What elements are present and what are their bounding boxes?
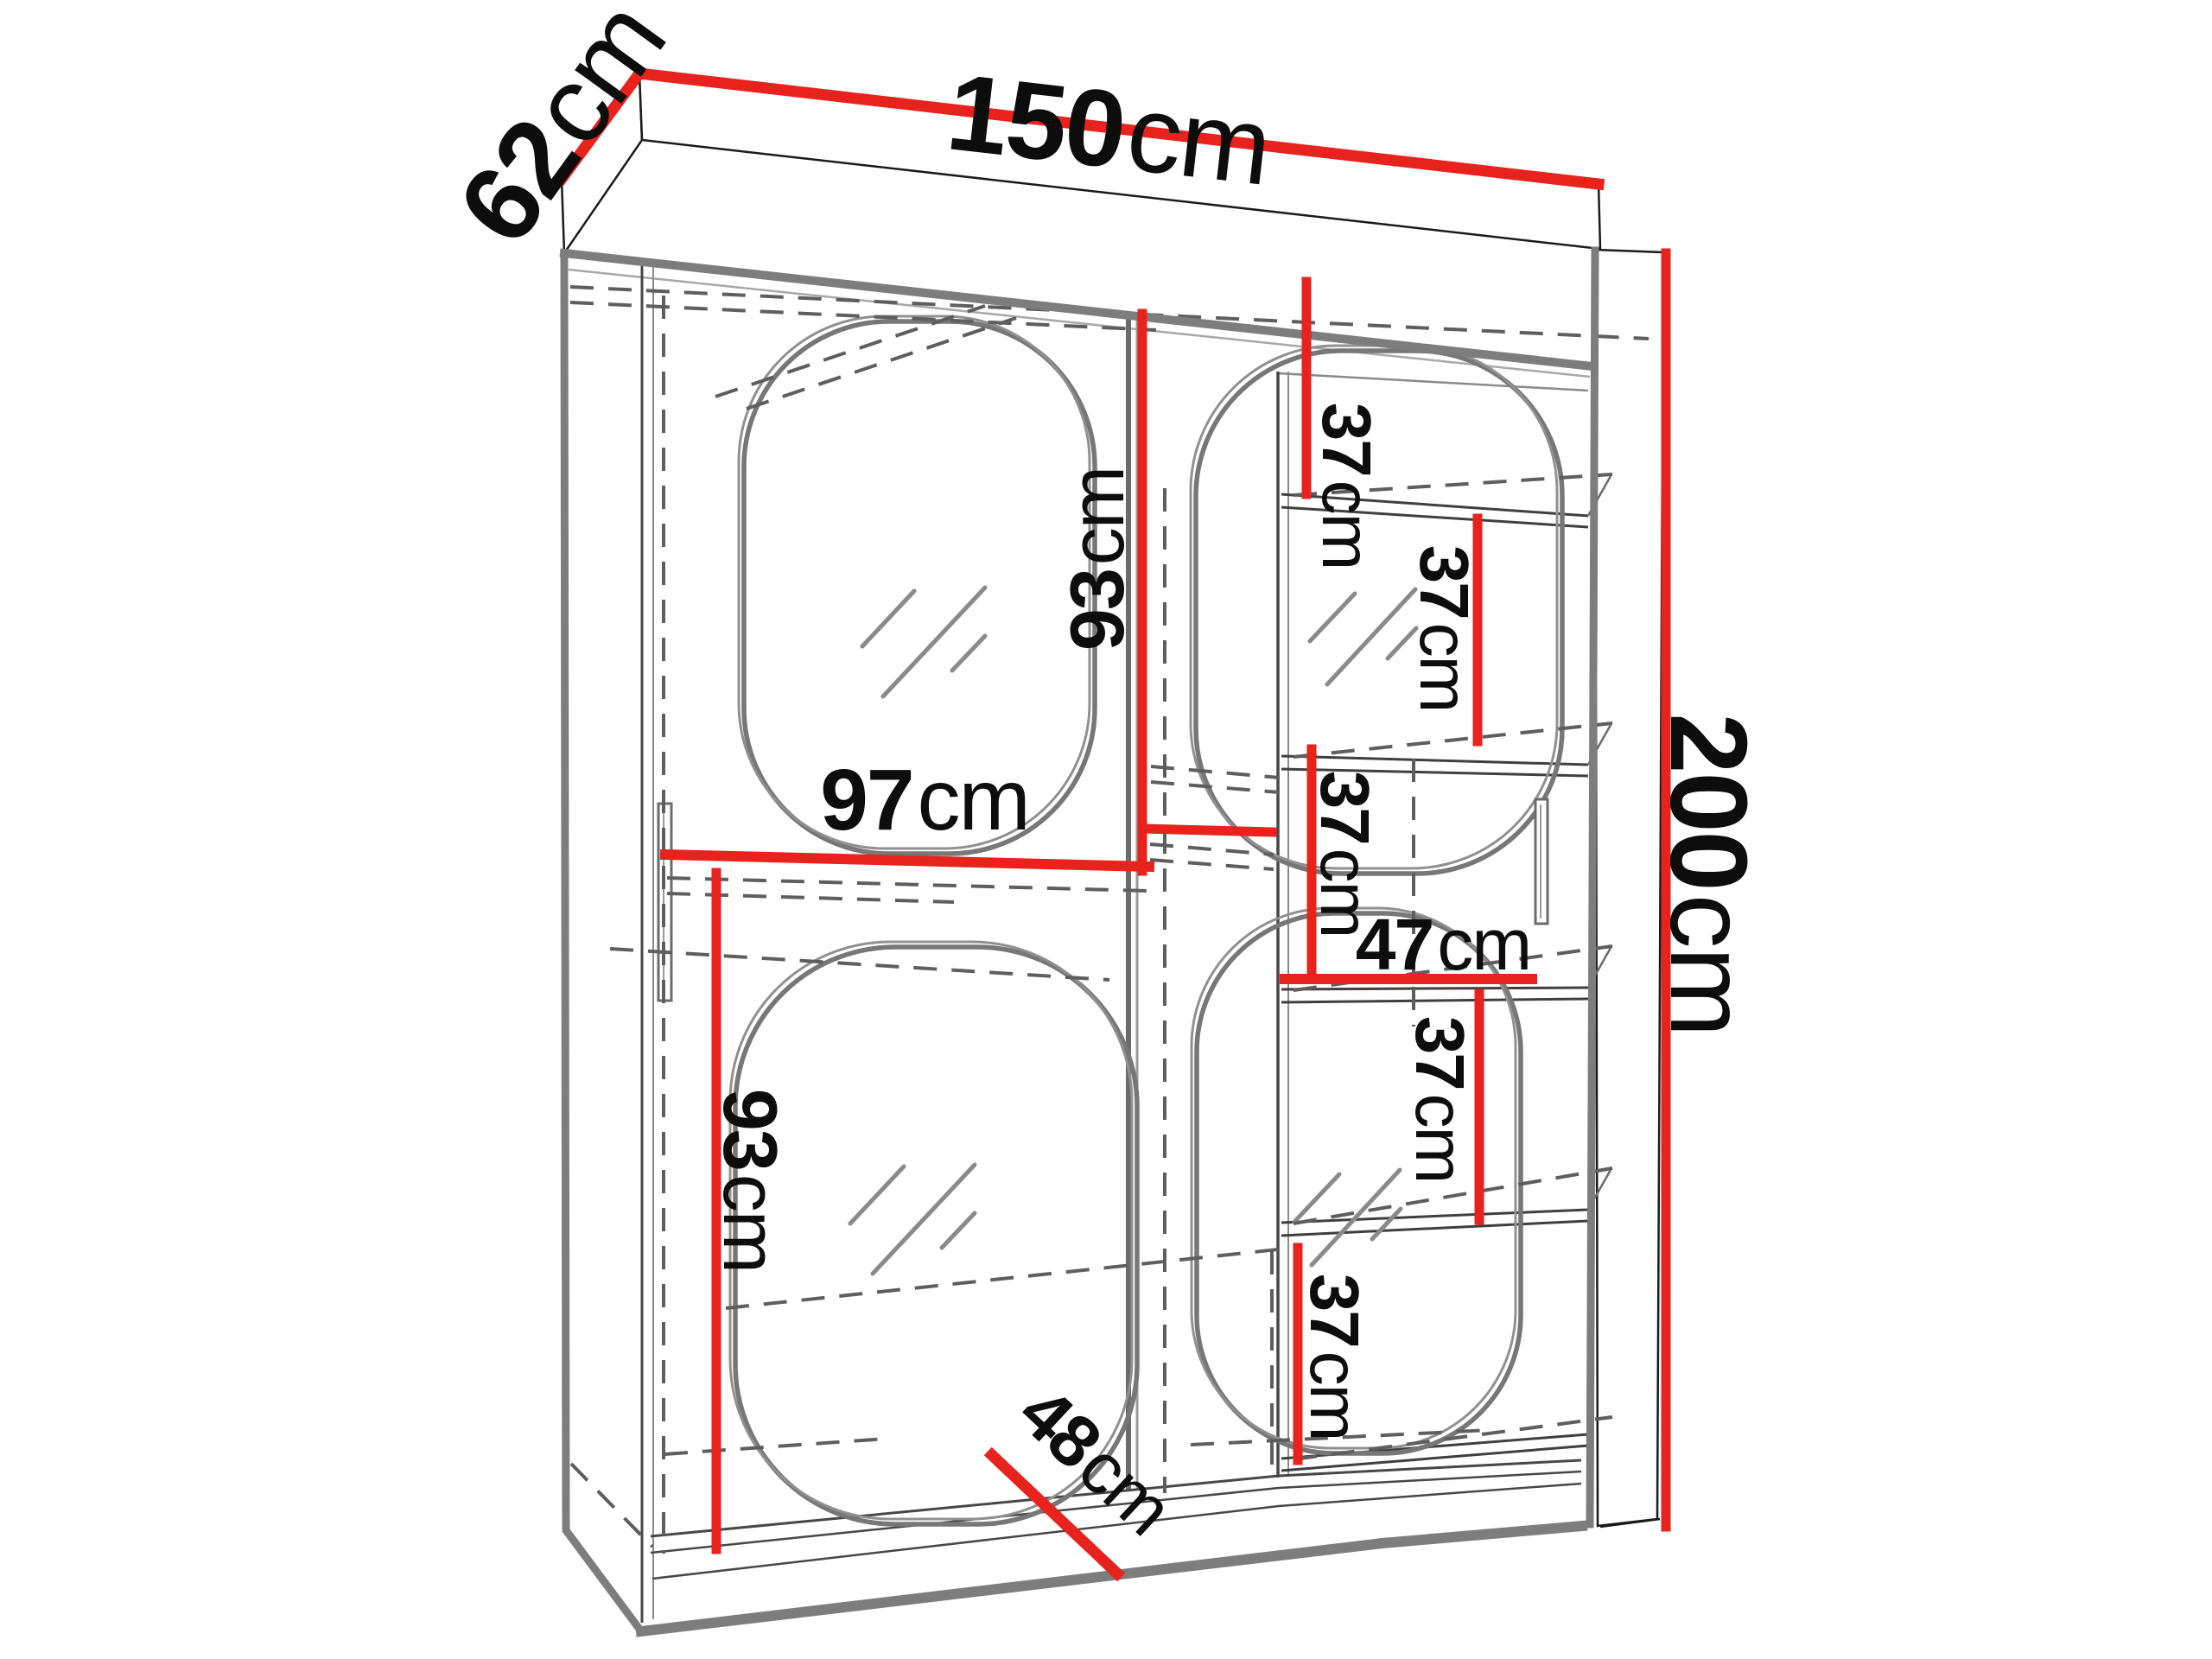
wardrobe-line-art — [0, 0, 2212, 1659]
bottom-edge-left — [641, 1543, 1382, 1631]
right-front-edge — [1590, 251, 1595, 1524]
left-outer-edge — [564, 253, 641, 1631]
dim-label-left-mirror-height: 93cm — [712, 1089, 788, 1272]
dim-line-97 — [665, 855, 1149, 867]
dim-label-height: 200cm — [1654, 713, 1763, 1035]
dim-label-center-mirror-height: 93cm — [1059, 467, 1135, 651]
top-front-edge — [564, 253, 1592, 366]
dim-label-shelf-gap-5: 37cm — [1300, 1274, 1369, 1440]
bottom-edge-right — [1382, 1526, 1582, 1543]
wardrobe-dimension-diagram: 150cm 62cm 200cm 93cm 97cm 93cm 48cm 37c… — [0, 0, 2212, 1659]
dim-label-shelf-gap-4: 37cm — [1405, 1016, 1474, 1183]
dimension-lines — [562, 73, 1666, 1573]
mirror-glass-hatch — [1310, 589, 1416, 684]
dim-label-shelf-gap-2: 37cm — [1409, 545, 1478, 712]
dim-label-shelf-column-width: 47cm — [1356, 908, 1530, 981]
dim-label-shelf-gap-1: 37cm — [1312, 403, 1381, 569]
mirror-glass-hatch — [850, 1165, 975, 1274]
dim-label-left-interior-width: 97cm — [820, 757, 1029, 843]
dim-line-shelf-ref — [1142, 829, 1272, 832]
mirror-glass-hatch — [862, 588, 985, 696]
